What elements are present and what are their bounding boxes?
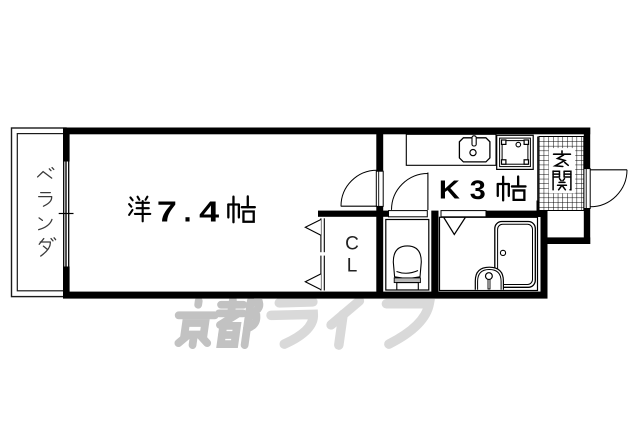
- svg-text:3: 3: [470, 175, 486, 205]
- svg-text:.: .: [183, 196, 191, 228]
- svg-text:7: 7: [157, 196, 177, 228]
- svg-text:K: K: [439, 175, 460, 205]
- svg-text:L: L: [347, 256, 358, 277]
- svg-text:C: C: [345, 233, 359, 254]
- svg-text:4: 4: [199, 196, 219, 228]
